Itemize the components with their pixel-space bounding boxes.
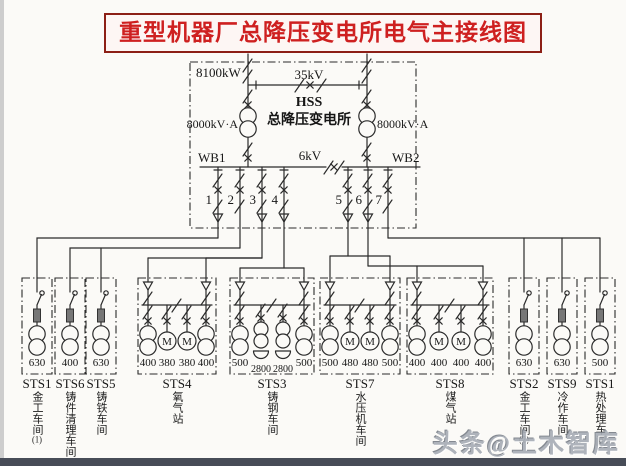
feeder-7: 7 [376,167,393,238]
feeder-4: 4 [272,167,289,268]
rating-label: 380 [179,357,196,369]
station-code: HSS [296,95,323,110]
shop-name-text: 铸铁车间 [95,391,107,435]
substation-id: STS1 [23,376,52,391]
rating-label: 400 [475,357,492,369]
watermark: 头条@土木智库 [433,424,620,460]
shop-name-sts4: 氧气站 [169,391,185,424]
rating-label: 400 [140,357,157,369]
rating-label: 630 [29,357,46,369]
feeder-number: 2 [228,192,235,207]
rating-label: 630 [93,357,110,369]
rating-label: 500 [592,357,609,369]
substation-id: STS2 [510,376,539,391]
substation-sts2: 630 STS2 [509,278,539,391]
transformer-t1 [240,108,256,137]
feeder-number: 4 [272,192,279,207]
distribution-wiring [37,238,600,282]
substation-id: STS7 [346,376,375,391]
feeder-5: 5 [336,167,353,256]
rating-label: 500 [382,357,399,369]
substation-id: STS8 [436,376,465,391]
substation-id: STS4 [163,376,192,391]
substation-id: STS1 [586,376,615,391]
busbar-wb1-label: WB1 [198,150,225,165]
rating-label: 500 [322,357,339,369]
bus-35kv: 35kV [248,67,367,92]
shop-name-sts3: 铸钢车间 [264,391,280,435]
substation-sts7: 500 480 480 500 STS7 [320,278,400,391]
busbar-wb2-label: WB2 [392,150,419,165]
substation-sts1-right: 500 STS1 [585,278,615,391]
rating-label: 2800 [251,364,271,375]
feeder-number: 1 [206,192,213,207]
shop-name-text: 金工车间 [31,391,43,435]
shop-name-suffix: (1) [32,435,42,444]
shop-name-sts1-left: 金工车间(1) [29,391,45,444]
feeder-6: 6 [356,167,373,266]
substation-sts9: 630 STS9 [547,278,577,391]
substation-sts8: 400 400 400 400 STS8 [407,278,493,391]
shop-name-sts5: 铸铁车间 [93,391,109,435]
page-bottom-edge [0,458,626,466]
rating-label: 400 [198,357,215,369]
substation-id: STS9 [548,376,577,391]
substation-id: STS5 [87,376,116,391]
rating-label: 400 [431,357,448,369]
lv-voltage-label: 6kV [299,148,322,163]
feeder-1: 1 [206,167,223,238]
rating-label: 380 [159,357,176,369]
rating-label: 630 [554,357,571,369]
rating-label: 480 [362,357,379,369]
station-name: 总降压变电所 [267,111,351,128]
transformer-t2-rating: 8000kV·A [377,117,429,131]
rating-label: 400 [62,357,79,369]
substation-sts5: 630 STS5 [86,278,116,391]
shop-name-text: 煤气站 [444,391,456,424]
substation-id: STS3 [258,376,287,391]
rating-label: 400 [453,357,470,369]
substation-id: STS6 [56,376,85,391]
feeder-number: 5 [336,192,343,207]
transformer-t2 [359,108,375,137]
rating-label: 2800 [273,364,293,375]
hss-boundary-box [190,62,416,228]
rating-label: 630 [516,357,533,369]
shop-name-text: 氧气站 [171,391,183,424]
transformer-t1-rating: 8000kV·A [187,117,239,131]
incoming-line-right [359,54,375,167]
shop-name-sts8: 煤气站 [442,391,458,424]
substation-sts1-left: 630 STS1 [22,278,52,391]
rating-label: 400 [409,357,426,369]
rating-label: 500 [232,357,249,369]
feeder-number: 6 [356,192,363,207]
shop-name-text: 铸件清理车间 [64,391,76,457]
substation-sts4: 400 380 380 400 STS4 [138,278,216,391]
feeder-3: 3 [250,167,267,258]
rating-label: 500 [296,357,313,369]
feeder-number: 3 [250,192,257,207]
feeder-2: 2 [228,167,245,248]
shop-name-text: 铸钢车间 [266,391,278,435]
substation-sts3: 500 2800 2800 500 STS3 [230,278,314,391]
shop-name-text: 水压机车间 [354,391,366,446]
incoming-line-left [240,54,256,167]
shop-name-sts6: 铸件清理车间 [62,391,78,457]
shop-name-sts7: 水压机车间 [352,391,368,446]
substation-sts6: 400 STS6 [55,278,85,391]
feeder-number: 7 [376,192,383,207]
rating-label: 480 [342,357,359,369]
scanned-diagram-page: 重型机器厂总降压变电所电气主接线图 M [0,0,626,466]
hv-voltage-label: 35kV [295,67,325,82]
hss-substation: 8100kW 8000kV·A 8000kV·A [187,54,429,268]
total-capacity-label: 8100kW [196,65,242,80]
